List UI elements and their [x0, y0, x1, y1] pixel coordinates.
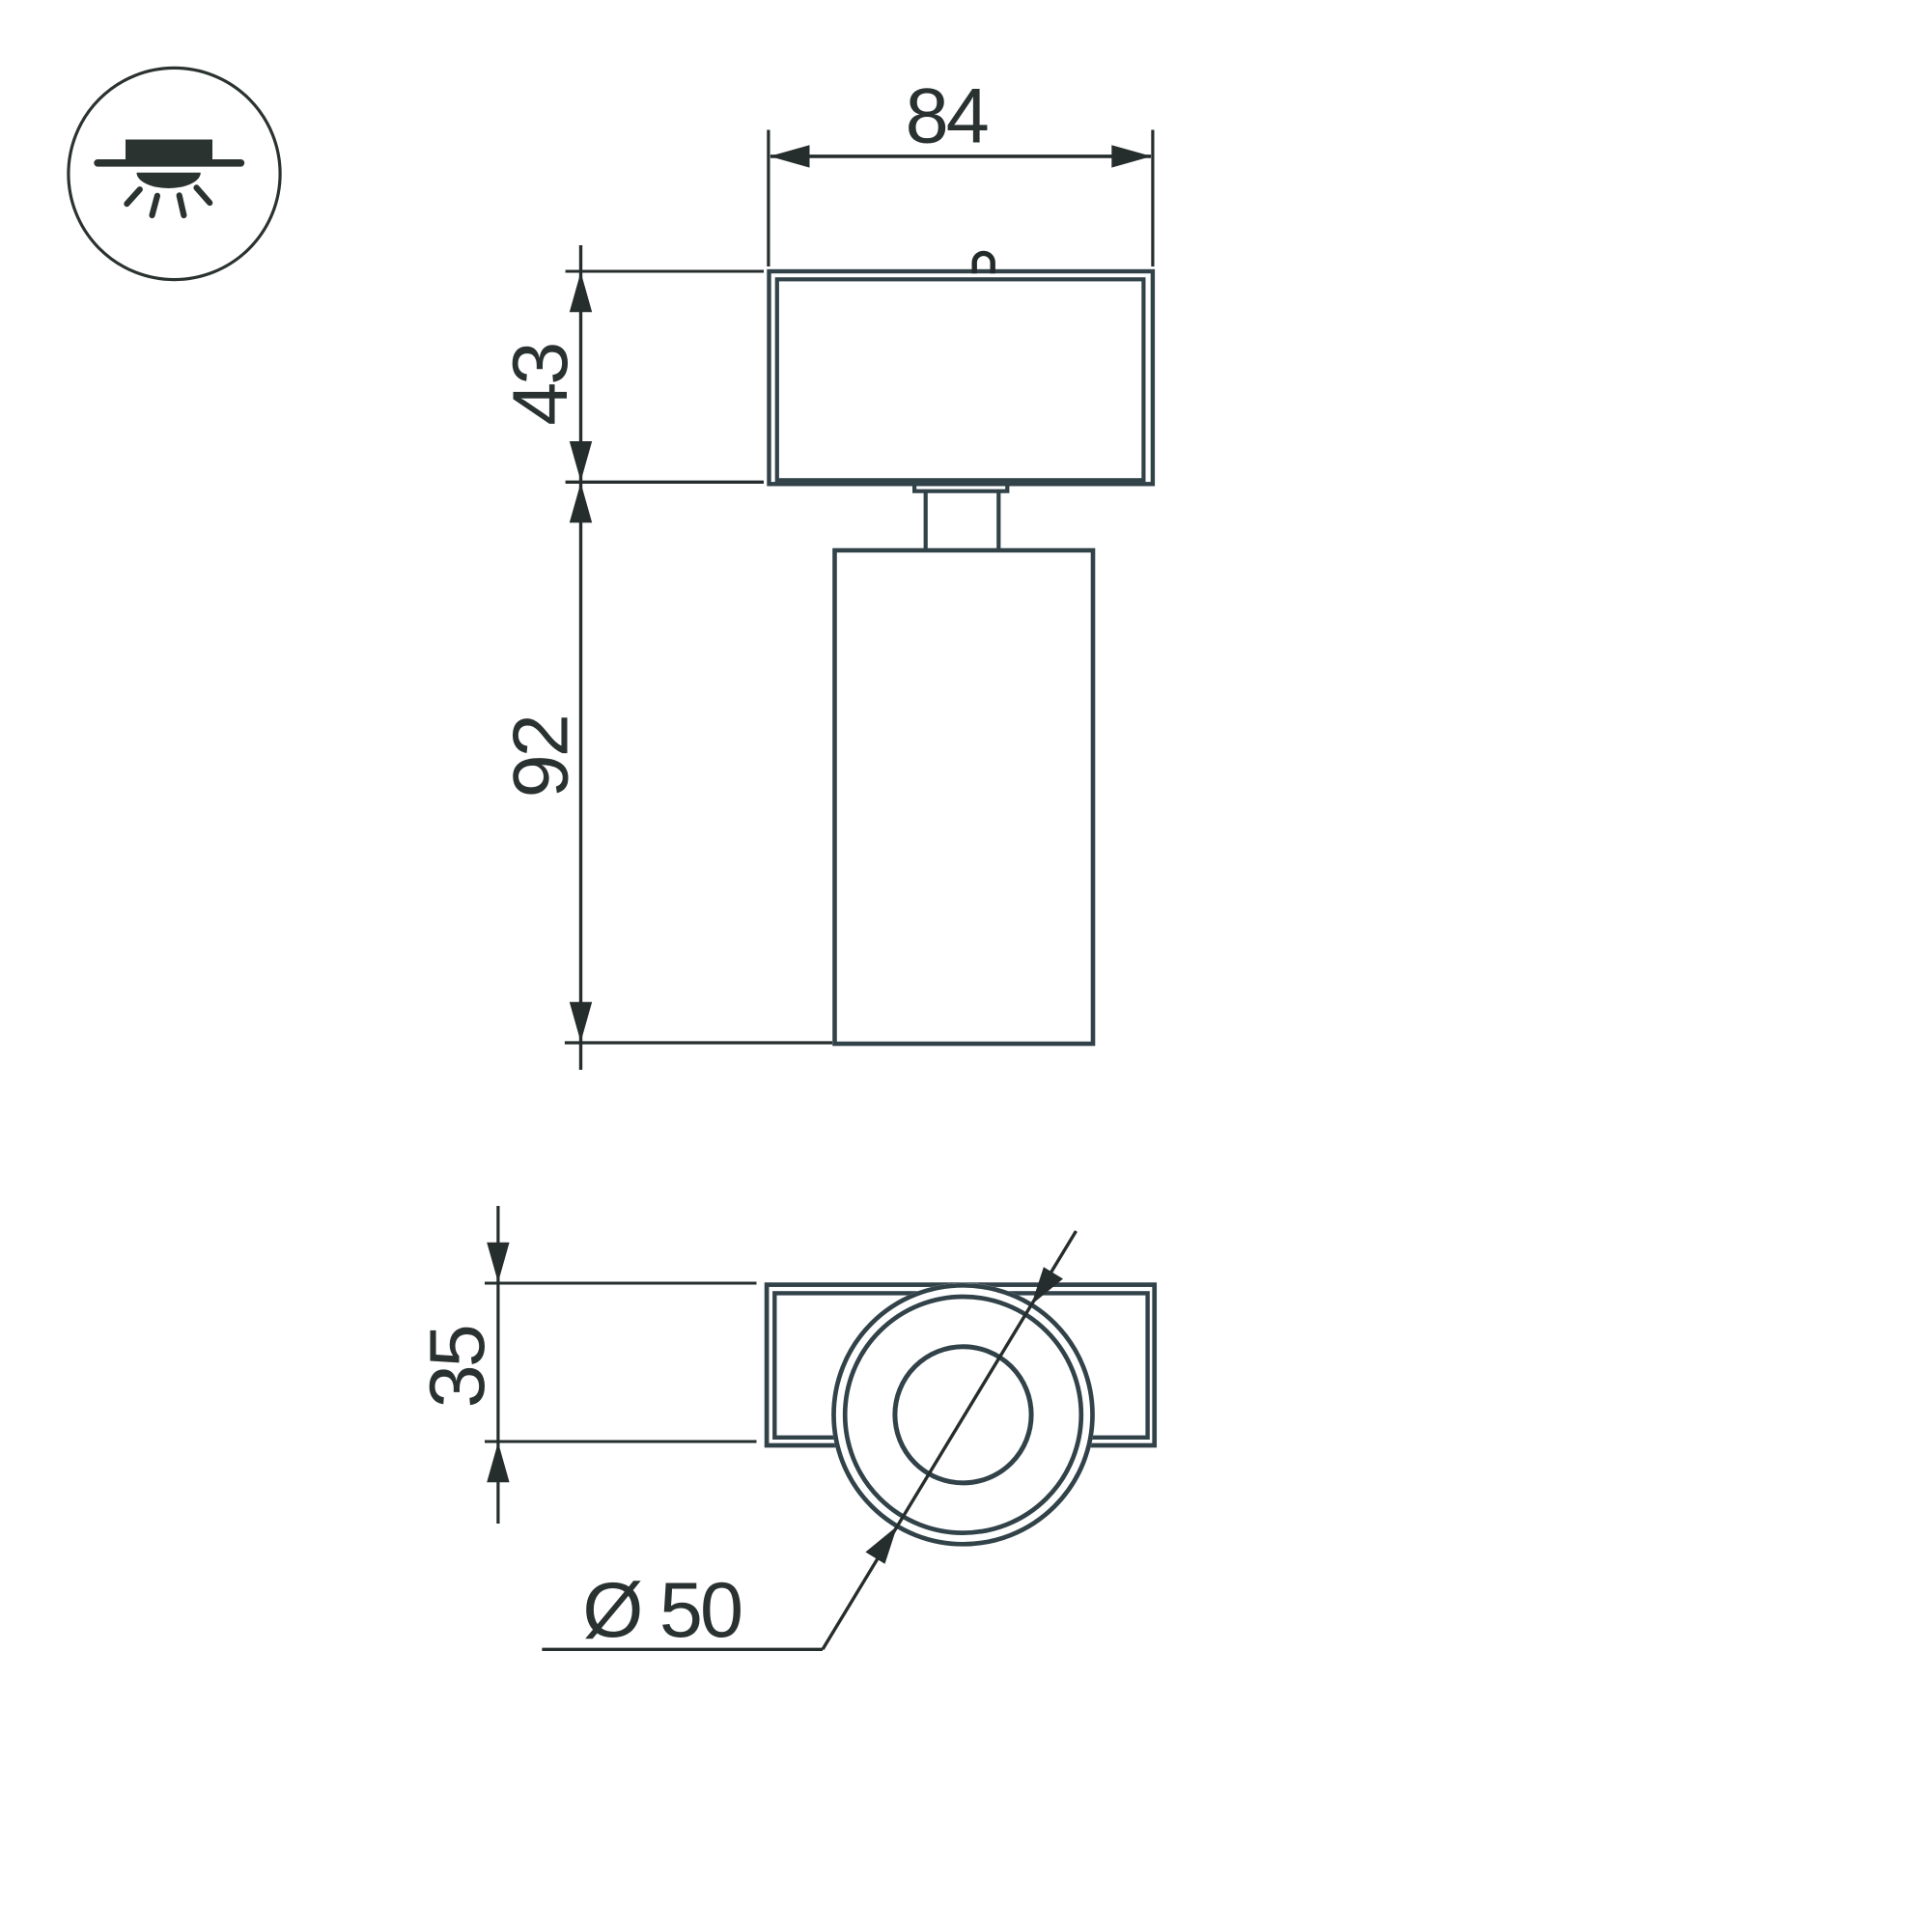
svg-text:Ø 50: Ø 50	[582, 1567, 741, 1654]
svg-text:84: 84	[906, 73, 988, 160]
svg-text:43: 43	[497, 345, 584, 426]
svg-text:35: 35	[414, 1327, 501, 1408]
svg-text:92: 92	[498, 716, 585, 798]
